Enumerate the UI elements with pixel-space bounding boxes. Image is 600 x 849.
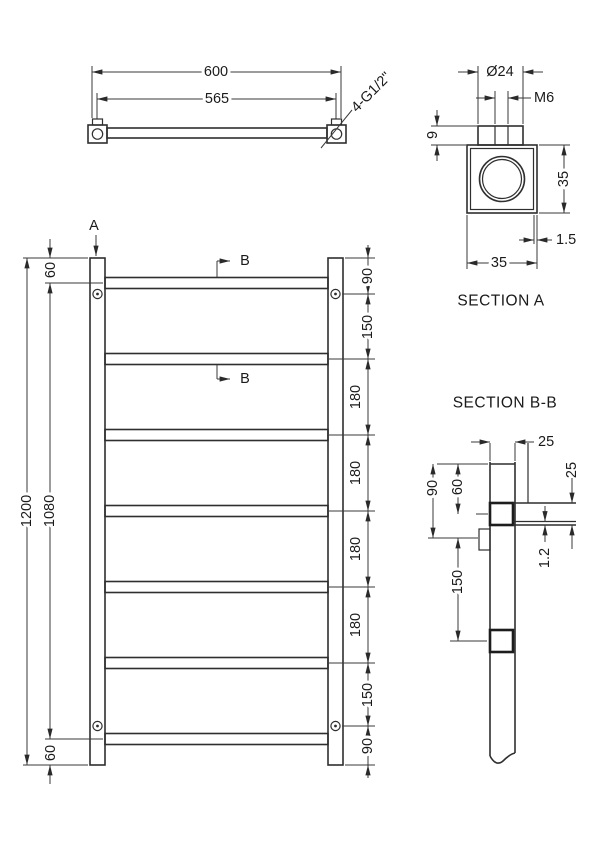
dim-1200-label: 1200 bbox=[19, 495, 35, 527]
dim-m6-label: M6 bbox=[534, 90, 554, 106]
section-bb-title: SECTION B-B bbox=[453, 395, 558, 412]
thread-callout-label: 4-G1/2" bbox=[348, 69, 394, 115]
dim-60-bb-label: 60 bbox=[450, 479, 466, 495]
rung-section-cut-top bbox=[490, 503, 513, 525]
front-view: A B B 1200 1080 60 60 bbox=[19, 218, 376, 784]
dim-1-5-label: 1.5 bbox=[556, 232, 576, 248]
mounting-holes bbox=[93, 289, 340, 730]
block-outer bbox=[467, 145, 537, 213]
section-cut-label-b-bottom: B bbox=[240, 371, 250, 387]
chain-label-150-top: 150 bbox=[360, 315, 376, 339]
dim-90-bb-label: 90 bbox=[425, 480, 441, 496]
dim-600-label: 600 bbox=[204, 64, 228, 80]
section-bb-view: SECTION B-B 25 25 1.2 90 bbox=[425, 395, 580, 764]
chain-label-90-bottom: 90 bbox=[360, 738, 376, 754]
rungs bbox=[105, 278, 328, 745]
connection-boss bbox=[478, 126, 523, 145]
dim-1-2-label: 1.2 bbox=[537, 548, 553, 568]
break-line bbox=[490, 753, 515, 763]
chain-label-180-4: 180 bbox=[348, 613, 364, 637]
tube-bore-inner bbox=[483, 160, 522, 199]
dim-25-height-label: 25 bbox=[564, 462, 580, 478]
section-a-title: SECTION A bbox=[457, 293, 544, 310]
chain-label-90-top: 90 bbox=[360, 268, 376, 284]
section-arrow-a-label: A bbox=[89, 218, 99, 234]
dim-150-bb-label: 150 bbox=[450, 570, 466, 594]
dim-25-width-label: 25 bbox=[538, 434, 554, 450]
dim-60-bottom-label: 60 bbox=[43, 745, 59, 761]
dim-35-width-label: 35 bbox=[491, 255, 507, 271]
technical-drawing-page: 600 565 4-G1/2" Ø24 bbox=[0, 0, 600, 849]
tube-bore-outer bbox=[480, 157, 525, 202]
right-end-block bbox=[327, 125, 346, 143]
section-cut-label-b-top: B bbox=[240, 253, 250, 269]
rail-tube-top-view bbox=[107, 128, 327, 138]
section-a-view: Ø24 M6 9 35 1.5 35 SECTION A bbox=[425, 64, 576, 310]
left-rail bbox=[90, 258, 105, 765]
dim-1080-label: 1080 bbox=[42, 495, 58, 527]
chain-label-150-bottom: 150 bbox=[360, 683, 376, 707]
dim-60-top-label: 60 bbox=[43, 262, 59, 278]
dim-565-label: 565 bbox=[205, 91, 229, 107]
chain-label-180-1: 180 bbox=[348, 385, 364, 409]
dim-9-label: 9 bbox=[425, 131, 441, 139]
left-end-block bbox=[88, 125, 107, 143]
top-view: 600 565 4-G1/2" bbox=[88, 64, 395, 148]
wall-bracket bbox=[479, 529, 490, 550]
chain-label-180-2: 180 bbox=[348, 461, 364, 485]
chain-label-180-3: 180 bbox=[348, 537, 364, 561]
towel-rail-drawing: 600 565 4-G1/2" Ø24 bbox=[0, 0, 600, 849]
dim-dia24-label: Ø24 bbox=[486, 64, 513, 80]
dim-35-height-label: 35 bbox=[556, 171, 572, 187]
rung-section-cut-bottom bbox=[490, 630, 513, 652]
